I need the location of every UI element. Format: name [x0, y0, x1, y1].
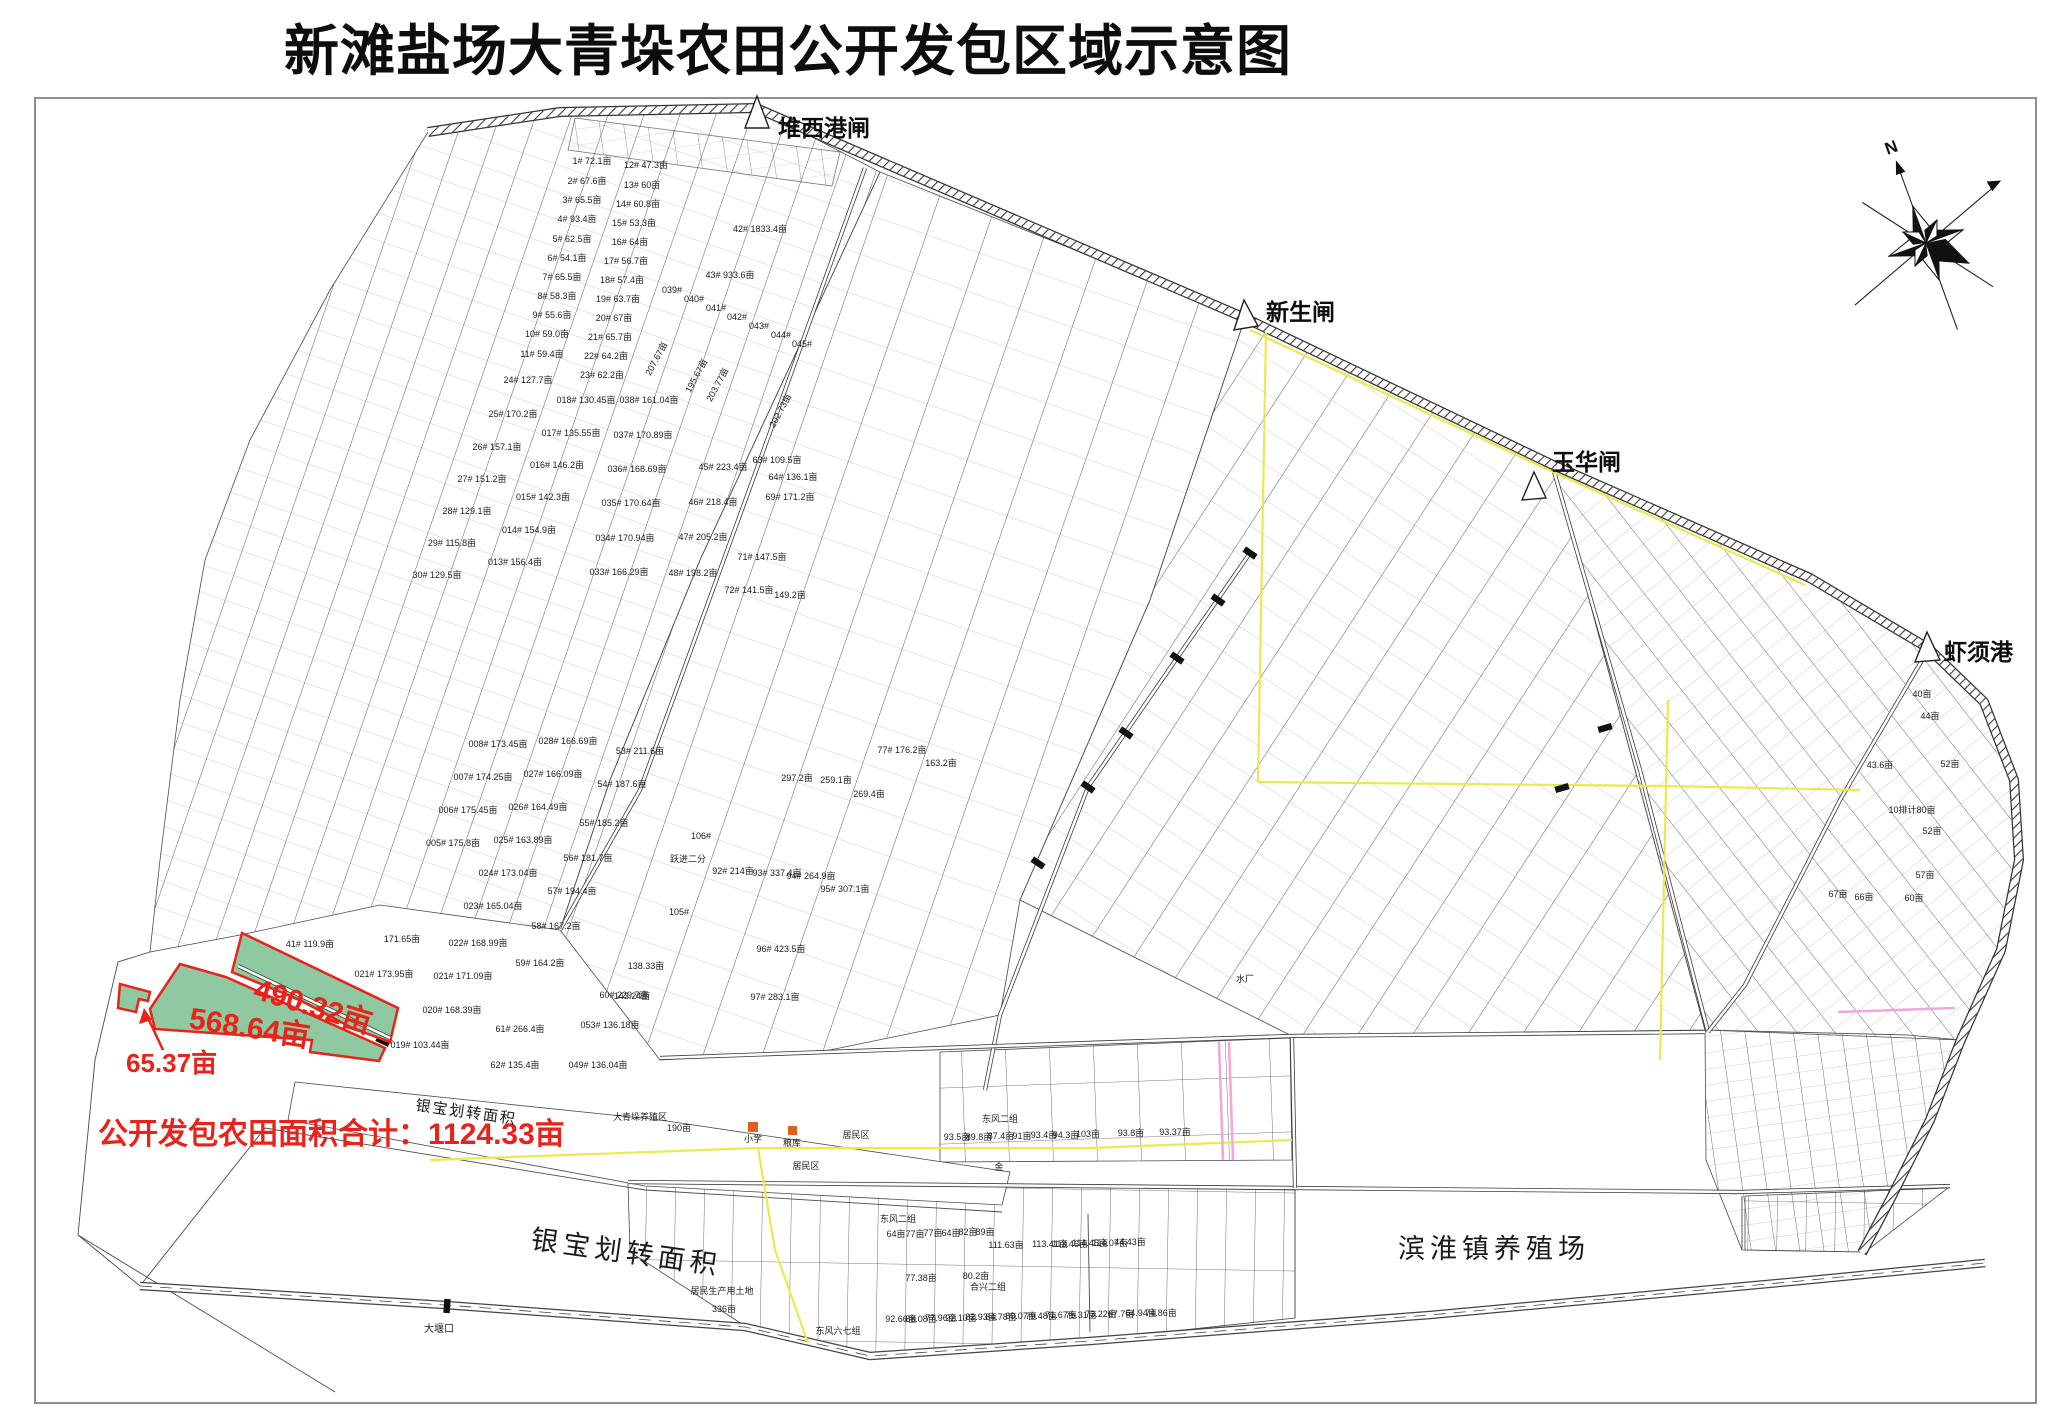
- parcel-label: 80.2亩: [963, 1270, 990, 1281]
- parcel-label: 111.63亩: [988, 1239, 1023, 1250]
- parcel-label: 93.37亩: [1159, 1126, 1191, 1137]
- parcel-label: 10# 59.0亩: [525, 328, 569, 339]
- parcel-label: 021# 171.09亩: [433, 970, 492, 981]
- parcel-label: 62# 135.4亩: [490, 1059, 539, 1070]
- parcel-label: 336亩: [712, 1303, 736, 1314]
- parcel-label: 77# 176.2亩: [877, 744, 926, 755]
- parcel-label: 12# 47.3亩: [624, 159, 668, 170]
- gate-xinsheng: 新生闸: [1234, 299, 1335, 330]
- parcel-label: 居民生产用土地: [690, 1285, 753, 1296]
- parcel-label: 96# 423.5亩: [756, 943, 805, 954]
- parcel-label: 25# 170.2亩: [488, 408, 537, 419]
- parcel-label: 东风二组: [982, 1113, 1018, 1124]
- parcel-label: 021# 173.95亩: [354, 968, 413, 979]
- parcel-label: 72# 141.5亩: [724, 584, 773, 595]
- parcel-label: 035# 170.64亩: [601, 497, 660, 508]
- parcel-label: 55# 185.2亩: [579, 817, 628, 828]
- parcel-label: 27# 151.2亩: [457, 473, 506, 484]
- parcel-label: 022# 168.99亩: [448, 937, 507, 948]
- parcel-label: 77亩: [923, 1227, 942, 1238]
- parcel-label: 63# 109.5亩: [752, 454, 801, 465]
- parcel-label: 大青垛养殖区: [613, 1111, 667, 1122]
- parcel-label: 居民区: [792, 1161, 819, 1171]
- parcel-label: 57# 194.4亩: [547, 885, 596, 896]
- parcel-label: 61# 266.4亩: [495, 1023, 544, 1034]
- parcel-label: 297.2亩: [781, 772, 813, 783]
- parcel-label: 149.2亩: [774, 589, 806, 600]
- parcel-label: 29# 115.8亩: [428, 537, 476, 548]
- parcel-label: 57亩: [1915, 869, 1934, 880]
- parcel-label: 89亩: [975, 1226, 994, 1237]
- parcel-label: 025# 163.89亩: [493, 834, 552, 845]
- parcel-label: 67亩: [1828, 888, 1847, 899]
- parcel-label: 020# 168.39亩: [422, 1004, 481, 1015]
- compass-rose: N: [1805, 107, 2044, 359]
- parcel-label: 21# 65.7亩: [588, 331, 632, 342]
- parcel-label: 016# 146.2亩: [530, 459, 584, 470]
- parcel-label: 036# 168.69亩: [607, 463, 666, 474]
- parcel-label: 5# 62.5亩: [552, 233, 591, 244]
- parcel-label: 014# 154.9亩: [502, 524, 556, 535]
- parcel-label: 28# 129.1亩: [442, 505, 491, 516]
- parcel-label: 56# 181.7亩: [563, 852, 612, 863]
- parcel-label: 居民区: [842, 1130, 869, 1140]
- parcel-label: 039#: [662, 285, 682, 295]
- parcel-label: 143.24亩: [614, 990, 651, 1001]
- parcel-label: 水厂: [1236, 973, 1254, 984]
- parcel-label: 47# 205.2亩: [678, 531, 727, 542]
- parcel-label: 037# 170.89亩: [613, 429, 672, 440]
- binhuai-label: 滨淮镇养殖场: [1398, 1234, 1590, 1264]
- parcel-label: 053# 136.18亩: [580, 1019, 639, 1030]
- parcel-label: 042#: [727, 312, 747, 322]
- parcel-label: 24# 127.7亩: [503, 374, 552, 385]
- parcel-label: 42# 1833.4亩: [733, 223, 787, 234]
- parcel-label: 044#: [771, 330, 791, 340]
- parcel-label: 16# 64亩: [612, 236, 649, 247]
- parcel-label: 26# 157.1亩: [472, 441, 521, 452]
- parcel-label: 94# 264.9亩: [786, 870, 835, 881]
- parcel-label: 97# 283.1亩: [750, 991, 799, 1002]
- parcel-label: 10排计80亩: [1888, 804, 1935, 815]
- parcel-label: 015# 142.3亩: [516, 491, 570, 502]
- parcel-label: 30# 129.5亩: [412, 569, 461, 580]
- highlight-parcel-65: [118, 984, 150, 1012]
- parcel-label: 14# 60.8亩: [616, 198, 660, 209]
- parcel-label: 64# 136.1亩: [768, 471, 817, 482]
- parcel-label: 43# 933.6亩: [705, 269, 754, 280]
- parcel-label: 52亩: [1940, 758, 1959, 769]
- parcel-label: 040#: [684, 294, 704, 304]
- parcel-65-label: 65.37亩: [126, 1048, 217, 1078]
- parcel-label: 045#: [792, 339, 812, 349]
- parcel-label: 6# 54.1亩: [547, 252, 586, 263]
- gate-xiaxugang: 虾须港: [1915, 632, 2014, 665]
- parcel-label: 44亩: [1920, 710, 1939, 721]
- parcel-label: 77.38亩: [905, 1272, 937, 1283]
- dayankou-label: 大堰口: [424, 1322, 454, 1335]
- svg-text:新生闸: 新生闸: [1266, 299, 1335, 325]
- parcel-label: 52亩: [1922, 825, 1941, 836]
- parcel-label: 东风六七组: [815, 1325, 860, 1336]
- parcel-label: 合兴二组: [970, 1281, 1006, 1292]
- parcel-label: 40亩: [1912, 688, 1931, 699]
- parcel-label: 60亩: [1904, 892, 1923, 903]
- parcel-label: 59# 164.2亩: [515, 957, 564, 968]
- parcel-label: 跃进二分: [670, 854, 706, 864]
- parcel-label: 259.1亩: [820, 774, 852, 785]
- parcel-label: 043#: [749, 321, 769, 331]
- parcel-label: 163.2亩: [925, 757, 957, 768]
- parcel-label: 18# 57.4亩: [600, 274, 644, 285]
- parcel-label: 026# 164.49亩: [508, 801, 567, 812]
- parcel-label: 105#: [669, 907, 689, 917]
- svg-text:堆西港闸: 堆西港闸: [778, 115, 870, 141]
- parcel-zone-south-strips-east: [1745, 1188, 1948, 1252]
- parcel-label: 77亩: [905, 1228, 924, 1239]
- parcel-label: 8# 58.3亩: [537, 290, 576, 301]
- parcel-label: 269.4亩: [853, 788, 885, 799]
- granary-building-marker: [788, 1126, 797, 1135]
- parcel-label: 106#: [691, 831, 711, 841]
- parcel-label: 008# 173.45亩: [468, 738, 527, 749]
- parcel-label: 171.65亩: [384, 933, 421, 944]
- parcel-label: 87.4亩: [988, 1130, 1015, 1141]
- parcel-label: 11# 59.4亩: [520, 348, 563, 359]
- parcel-label: 007# 174.25亩: [453, 771, 512, 782]
- parcel-label: 023# 165.04亩: [463, 900, 522, 911]
- parcel-label: 43.6亩: [1867, 759, 1894, 770]
- parcel-label: 9# 55.6亩: [532, 309, 571, 320]
- field-regions: [150, 108, 2018, 1356]
- parcel-label: 138.33亩: [628, 960, 665, 971]
- svg-text:虾须港: 虾须港: [1944, 639, 2014, 665]
- parcel-label: 3# 65.5亩: [562, 194, 601, 205]
- parcel-label: 005# 175.8亩: [426, 837, 480, 848]
- parcel-label: 190亩: [667, 1122, 691, 1133]
- parcel-label: 033# 166.29亩: [589, 566, 648, 577]
- school-building-marker: [748, 1122, 758, 1132]
- parcel-label: 018# 130.45亩: [556, 394, 615, 405]
- parcel-label: 049# 136.04亩: [568, 1059, 627, 1070]
- svg-text:玉华闸: 玉华闸: [1552, 449, 1621, 475]
- parcel-label: 91亩: [1012, 1130, 1031, 1141]
- parcel-label: 74.86亩: [1145, 1307, 1177, 1318]
- parcel-label: 041#: [706, 303, 726, 313]
- parcel-label: 41# 119.9亩: [286, 938, 334, 949]
- parcel-label: 4# 93.4亩: [557, 213, 596, 224]
- parcel-label: 48# 198.2亩: [668, 567, 717, 578]
- parcel-label: 粮库: [783, 1137, 801, 1148]
- parcel-label: 66亩: [1854, 891, 1873, 902]
- parcel-label: 69# 171.2亩: [765, 491, 814, 502]
- parcel-label: 金: [994, 1161, 1003, 1172]
- parcel-label: 2# 67.6亩: [567, 175, 606, 186]
- parcel-label: 7# 65.5亩: [542, 271, 581, 282]
- parcel-label: 024# 173.04亩: [478, 867, 537, 878]
- parcel-label: 71# 147.5亩: [737, 551, 786, 562]
- parcel-label: 038# 161.04亩: [619, 394, 678, 405]
- parcel-label: 64亩: [886, 1228, 905, 1239]
- parcel-label: 小学: [744, 1133, 762, 1144]
- parcel-label: 46# 218.4亩: [688, 496, 737, 507]
- page: 新滩盐场大青垛农田公开发包区域示意图: [0, 0, 2069, 1417]
- parcel-label: 44.43亩: [1114, 1236, 1146, 1247]
- parcel-label: 027# 166.09亩: [523, 768, 582, 779]
- parcel-label: 19# 63.7亩: [596, 293, 640, 304]
- parcel-label: 15# 53.3亩: [612, 217, 656, 228]
- compass-north-label: N: [1882, 137, 1900, 159]
- parcel-label: 53# 211.6亩: [616, 745, 664, 756]
- parcel-label: 95# 307.1亩: [820, 883, 869, 894]
- parcel-label: 1# 72.1亩: [572, 155, 611, 166]
- parcel-label: 017# 135.55亩: [541, 427, 600, 438]
- parcel-label: 028# 166.69亩: [538, 735, 597, 746]
- parcel-label: 034# 170.94亩: [595, 532, 654, 543]
- parcel-label: 013# 156.4亩: [488, 556, 542, 567]
- parcel-label: 17# 56.7亩: [604, 255, 648, 266]
- parcel-label: 006# 175.45亩: [438, 804, 497, 815]
- parcel-label: 103亩: [1076, 1128, 1100, 1139]
- map-canvas: 490.32亩 568.64亩 65.37亩 公开发包农田面积合计：1124.3…: [0, 0, 2069, 1417]
- parcel-label: 58# 167.2亩: [531, 920, 580, 931]
- parcel-label: 92# 214亩: [712, 865, 754, 876]
- parcel-label: 20# 67亩: [596, 312, 633, 323]
- parcel-label: 54# 187.6亩: [597, 778, 646, 789]
- parcel-label: 45# 223.4亩: [698, 461, 747, 472]
- parcel-label: 13# 60亩: [624, 179, 661, 190]
- parcel-label: 93.8亩: [1118, 1127, 1145, 1138]
- parcel-label: 22# 64.2亩: [584, 350, 628, 361]
- parcel-label: 东风二组: [880, 1213, 916, 1224]
- parcel-label: 23# 62.2亩: [580, 369, 624, 380]
- parcel-label: 019# 103.44亩: [390, 1039, 449, 1050]
